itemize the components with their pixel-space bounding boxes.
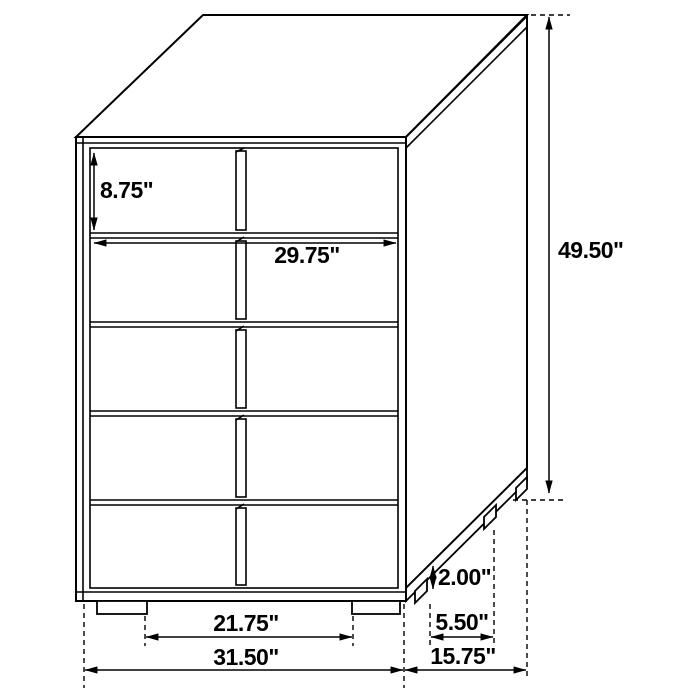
drawer-handle [236, 148, 246, 230]
drawer-handle [236, 326, 246, 408]
front-left-leg [97, 601, 147, 614]
dim-label-overall-height: 49.50" [558, 237, 623, 263]
drawer-handle [236, 415, 246, 497]
dim-leg-height: 2.00" [433, 564, 491, 590]
drawer-handle [236, 504, 246, 585]
dim-label-side-leg-spacing: 5.50" [435, 609, 488, 635]
dim-front-leg-spacing: 21.75" [145, 610, 353, 646]
dimension-diagram: 8.75" 29.75" 49.50" 2.00" 5.50" [0, 0, 700, 700]
dim-label-front-leg-spacing: 21.75" [213, 610, 278, 636]
dim-label-drawer-height: 8.75" [100, 177, 153, 203]
dim-label-overall-width: 31.50" [213, 644, 278, 670]
dim-overall-height: 49.50" [513, 15, 623, 500]
diagram-svg: 8.75" 29.75" 49.50" 2.00" 5.50" [0, 0, 700, 700]
chest-drawing [76, 15, 527, 614]
drawer-handles [236, 148, 246, 585]
drawer-handle [236, 237, 246, 319]
dim-label-overall-depth: 15.75" [430, 643, 495, 669]
dim-label-leg-height: 2.00" [438, 564, 491, 590]
dim-label-drawer-width: 29.75" [274, 242, 339, 268]
front-right-leg [352, 601, 400, 614]
